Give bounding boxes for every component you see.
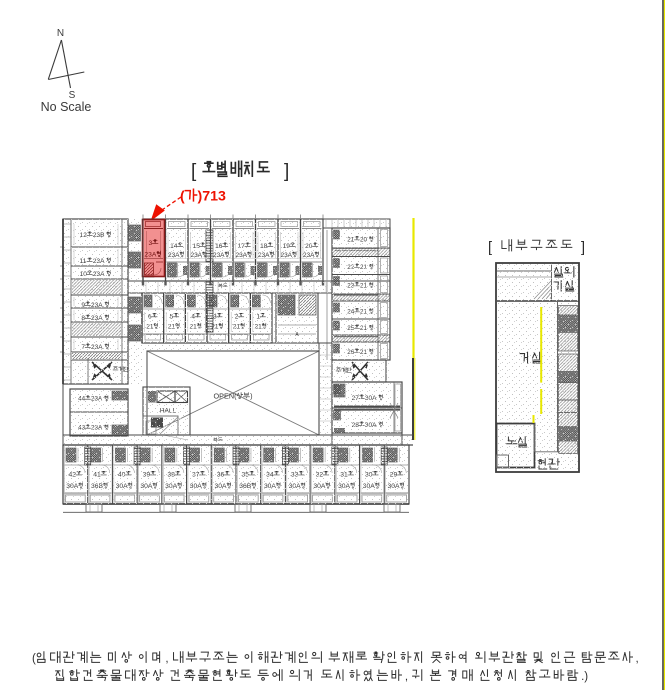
svg-text:]: ] bbox=[581, 240, 585, 256]
svg-text:(: ( bbox=[180, 189, 185, 205]
svg-text:,: , bbox=[636, 653, 639, 665]
svg-text:23A: 23A bbox=[144, 252, 156, 259]
svg-text:No Scale: No Scale bbox=[41, 100, 92, 114]
svg-text:]: ] bbox=[284, 161, 289, 182]
svg-text:,: , bbox=[165, 653, 168, 665]
svg-text:(: ( bbox=[32, 653, 36, 665]
svg-text:)713: )713 bbox=[197, 189, 226, 205]
svg-text:[: [ bbox=[488, 240, 492, 256]
svg-text:,: , bbox=[405, 671, 408, 683]
svg-text:.): .) bbox=[581, 671, 588, 683]
svg-text:3: 3 bbox=[149, 240, 153, 247]
svg-text:[: [ bbox=[191, 161, 197, 182]
svg-text:): ) bbox=[250, 392, 252, 401]
svg-text:OPEN(: OPEN( bbox=[214, 392, 238, 401]
svg-text:N: N bbox=[57, 28, 64, 39]
